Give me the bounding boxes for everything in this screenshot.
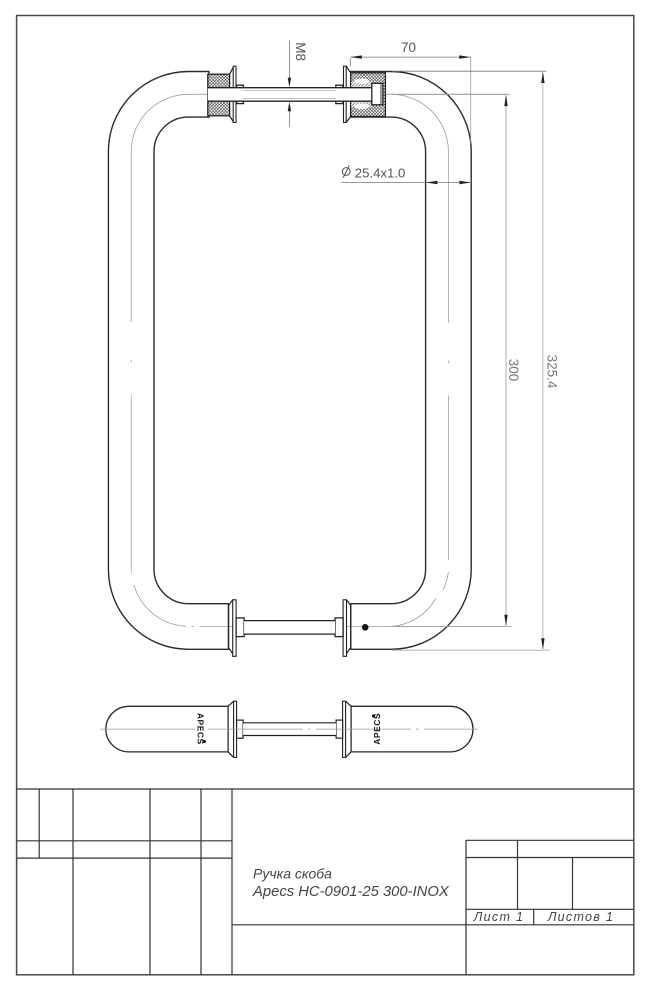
svg-text:M8: M8: [293, 42, 308, 61]
svg-text:Листов 1: Листов 1: [547, 910, 614, 924]
svg-text:25.4x1.0: 25.4x1.0: [355, 165, 406, 180]
svg-text:70: 70: [401, 40, 416, 55]
svg-text:APECS: APECS: [372, 713, 382, 745]
svg-text:Ручка скоба: Ручка скоба: [253, 866, 332, 882]
svg-text:300: 300: [506, 359, 521, 382]
svg-text:Apecs HC-0901-25 300-INOX: Apecs HC-0901-25 300-INOX: [252, 884, 450, 900]
svg-text:Лист 1: Лист 1: [473, 910, 524, 924]
svg-text:325.4: 325.4: [544, 355, 559, 389]
